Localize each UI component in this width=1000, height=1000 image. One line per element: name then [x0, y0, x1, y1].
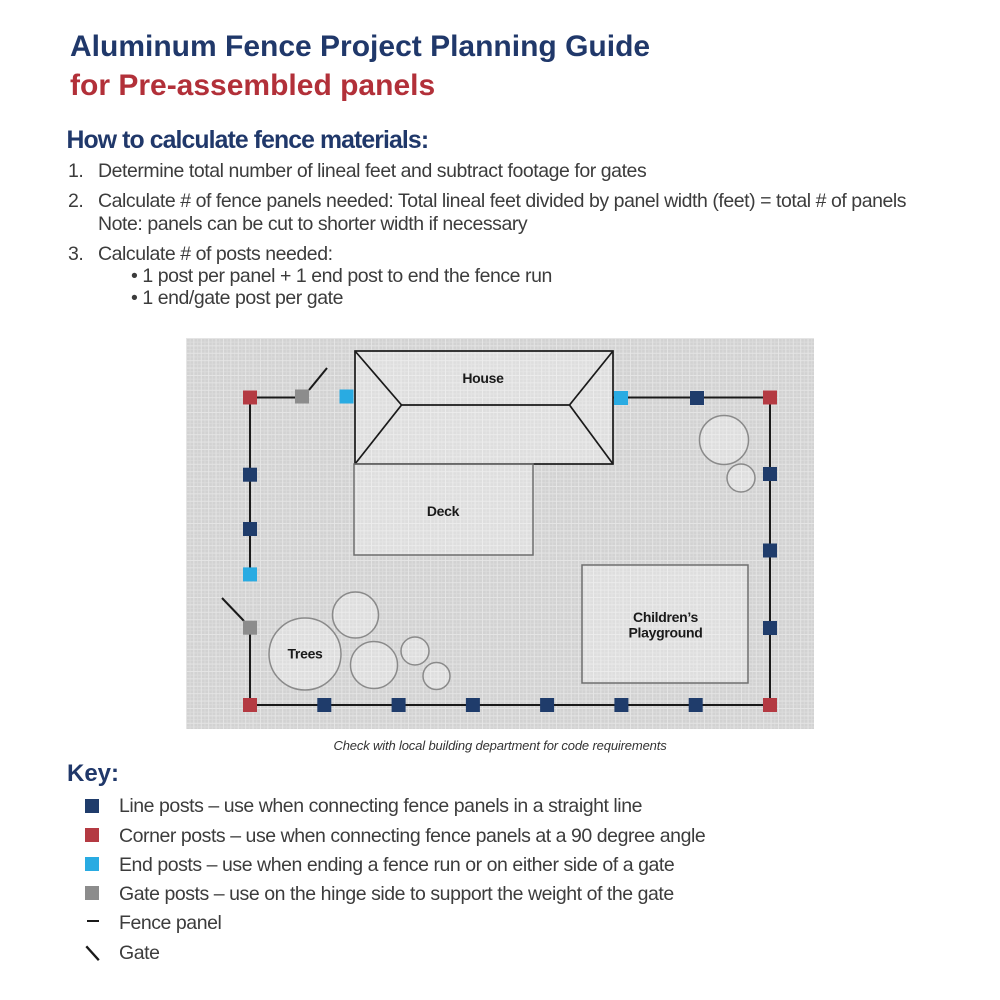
svg-text:Children’s: Children’s	[633, 609, 698, 625]
svg-text:Trees: Trees	[287, 646, 323, 662]
svg-text:Deck: Deck	[427, 503, 460, 519]
svg-text:Playground: Playground	[628, 625, 702, 641]
svg-text:House: House	[462, 370, 504, 386]
